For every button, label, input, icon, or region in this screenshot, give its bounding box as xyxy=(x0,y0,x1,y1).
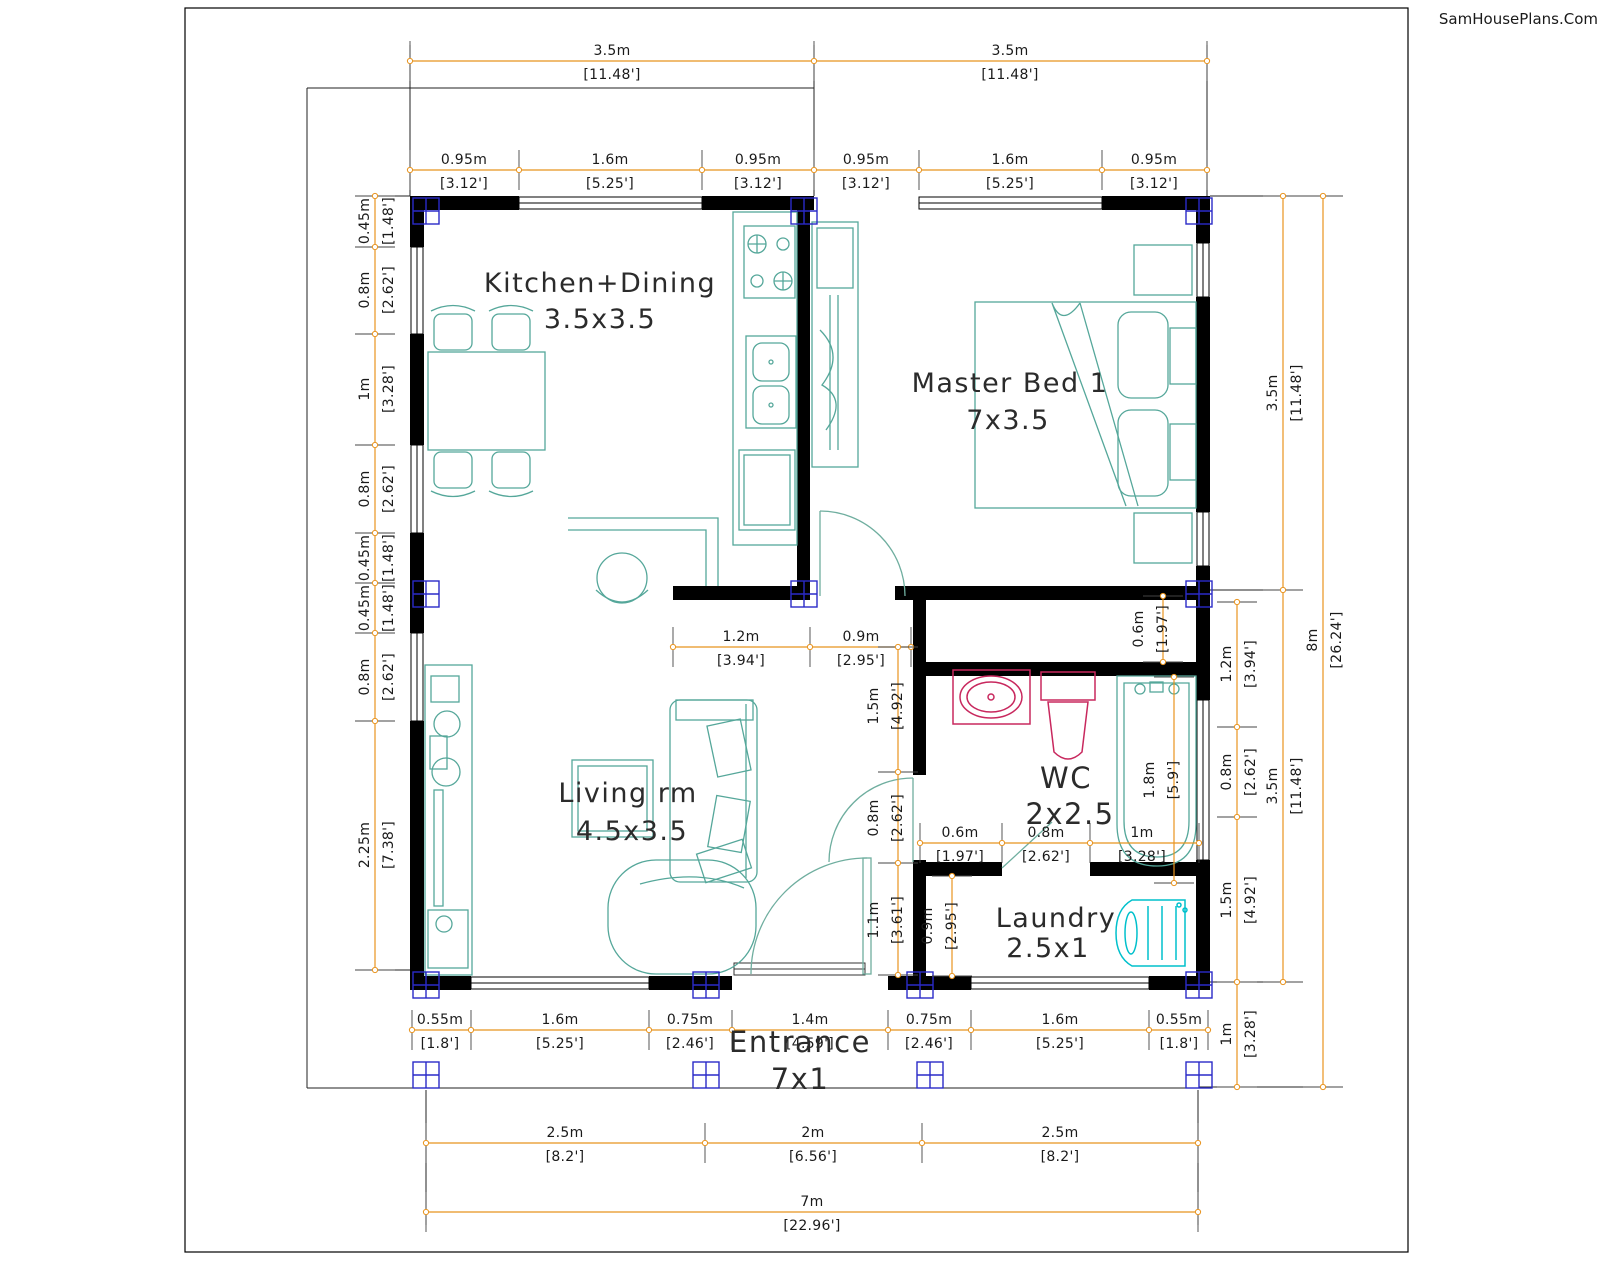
dimension-label-group: 8m[26.24'] xyxy=(1305,611,1345,668)
dimension-label-ft: [1.97'] xyxy=(1155,605,1171,653)
dimension-row: 0.95m[3.12']1.6m[5.25']0.95m[3.12']0.95m… xyxy=(407,150,1209,192)
dimension-label: 1.5m xyxy=(866,687,882,724)
dimension-label: 3.5m xyxy=(593,43,630,59)
dimension-label: 0.55m xyxy=(417,1012,463,1028)
dimension-column: 3.5m[11.48']3.5m[11.48'] xyxy=(1263,193,1305,984)
dimension-label-group: 1.2m[3.94'] xyxy=(1219,640,1259,688)
dimension-label-ft: [2.62'] xyxy=(381,653,397,701)
room-name: WC xyxy=(1040,761,1092,795)
dimension-label-group: 0.45m[1.48'] xyxy=(357,584,397,632)
dimension-label: 0.75m xyxy=(906,1012,952,1028)
dimension-label: 1.6m xyxy=(1041,1012,1078,1028)
floor-plan-page: SamHousePlans.Com xyxy=(0,0,1600,1280)
dimension-label-group: 0.8m[2.62'] xyxy=(357,653,397,701)
dimension-label-group: 0.8m[2.62'] xyxy=(866,794,906,842)
wardrobe xyxy=(812,222,858,467)
room-label: Laundry2.5x1 xyxy=(996,903,1117,964)
dimension-label: 0.95m xyxy=(1131,152,1177,168)
column-marker xyxy=(917,1062,943,1088)
dimension-label-ft: [3.94'] xyxy=(717,653,765,669)
dimension-label-group: 1.8m[5.9'] xyxy=(1142,761,1182,800)
dimension-column: 8m[26.24'] xyxy=(1303,193,1345,1089)
room-label: Master Bed 17x3.5 xyxy=(912,368,1109,436)
dimension-label-ft: [2.46'] xyxy=(666,1036,714,1052)
dimension-label: 1.2m xyxy=(722,629,759,645)
dimension-label: 0.8m xyxy=(357,470,373,507)
room-size: 3.5x3.5 xyxy=(544,304,656,335)
dimension-label-ft: [6.56'] xyxy=(789,1149,837,1165)
dimension-label-ft: [3.28'] xyxy=(1243,1010,1259,1058)
dimension-label: 0.6m xyxy=(1131,610,1147,647)
room-size: 2.5x1 xyxy=(1006,933,1090,964)
room-name: Entrance xyxy=(729,1025,871,1059)
kitchen-counter xyxy=(733,212,797,545)
washing-machine xyxy=(1116,900,1187,966)
dimension-column: 0.6m[1.97'] xyxy=(1131,593,1183,664)
column-marker xyxy=(413,1062,439,1088)
dimension-column: 0.9m[2.95'] xyxy=(920,873,972,978)
dimension-column: 1.5m[4.92']0.8m[2.62']1.1m[3.61'] xyxy=(866,644,918,977)
dimension-label: 1m xyxy=(357,377,373,400)
dimension-label: 2.25m xyxy=(357,822,373,868)
room-name: Laundry xyxy=(996,903,1117,934)
dining-table xyxy=(428,306,545,497)
dimension-label: 0.75m xyxy=(667,1012,713,1028)
dimension-label-ft: [3.12'] xyxy=(1130,176,1178,192)
dimension-label: 0.95m xyxy=(735,152,781,168)
dimension-label: 1m xyxy=(1130,825,1153,841)
dimension-label-ft: [7.38'] xyxy=(381,821,397,869)
dimension-label: 1m xyxy=(1219,1022,1235,1045)
dimension-label-ft: [5.9'] xyxy=(1166,761,1182,800)
column-marker xyxy=(1186,1062,1212,1088)
dimension-label: 0.95m xyxy=(441,152,487,168)
dimension-label-ft: [3.12'] xyxy=(440,176,488,192)
window xyxy=(411,633,423,721)
dimension-label-ft: [5.25'] xyxy=(586,176,634,192)
dimension-label: 3.5m xyxy=(1265,767,1281,804)
dimension-label: 8m xyxy=(1305,628,1321,651)
window xyxy=(519,197,702,209)
dimension-label-ft: [1.48'] xyxy=(381,584,397,632)
entrance-threshold xyxy=(734,963,865,975)
dimension-label-ft: [11.48'] xyxy=(583,67,640,83)
dimension-label-ft: [5.25'] xyxy=(536,1036,584,1052)
dimension-label-ft: [3.28'] xyxy=(381,365,397,413)
master-bed-door xyxy=(820,511,905,596)
dimension-label-group: 0.45m[1.48'] xyxy=(357,197,397,245)
dimension-label-group: 1.5m[4.92'] xyxy=(866,682,906,730)
dimension-label: 1.6m xyxy=(991,152,1028,168)
floor-plan-svg: SamHousePlans.Com xyxy=(0,0,1600,1280)
dimension-label-ft: [22.96'] xyxy=(783,1218,840,1234)
dimension-label: 0.9m xyxy=(842,629,879,645)
dimension-label-group: 1m[3.28'] xyxy=(1219,1010,1259,1058)
dimension-label-group: 1.5m[4.92'] xyxy=(1219,876,1259,924)
dimension-label-ft: [3.94'] xyxy=(1243,640,1259,688)
dimension-label-ft: [2.62'] xyxy=(1243,748,1259,796)
dimension-label: 0.8m xyxy=(1219,753,1235,790)
kitchen-cabinet xyxy=(739,450,795,530)
dimension-label: 0.8m xyxy=(357,658,373,695)
room-name: Master Bed 1 xyxy=(912,368,1109,399)
room-name: Kitchen+Dining xyxy=(484,268,716,299)
dimension-label-ft: [5.25'] xyxy=(986,176,1034,192)
dimension-label: 0.6m xyxy=(941,825,978,841)
dimension-label-ft: [2.62'] xyxy=(381,465,397,513)
nightstand xyxy=(1134,513,1192,563)
dimension-label: 0.9m xyxy=(920,907,936,944)
window xyxy=(971,977,1149,989)
dimension-label-group: 0.8m[2.62'] xyxy=(1219,748,1259,796)
dimension-label-ft: [8.2'] xyxy=(546,1149,585,1165)
dimension-label: 1.1m xyxy=(866,901,882,938)
dimension-label: 2.5m xyxy=(546,1125,583,1141)
dimension-label: 0.8m xyxy=(866,799,882,836)
dimension-label: 0.45m xyxy=(357,198,373,244)
dimension-label-ft: [4.92'] xyxy=(890,682,906,730)
dimension-label: 0.8m xyxy=(357,271,373,308)
entrance-door xyxy=(751,858,871,974)
dimension-label-ft: [5.25'] xyxy=(1036,1036,1084,1052)
wc-sink xyxy=(953,670,1030,724)
dimension-label-ft: [11.48'] xyxy=(1289,364,1305,421)
dimension-label: 7m xyxy=(800,1194,823,1210)
column-marker xyxy=(693,1062,719,1088)
stove xyxy=(744,226,795,298)
dimension-label-ft: [3.12'] xyxy=(734,176,782,192)
dimension-label-group: 0.45m[1.48'] xyxy=(357,534,397,582)
dimension-label-ft: [2.95'] xyxy=(837,653,885,669)
dimension-label-ft: [11.48'] xyxy=(1289,757,1305,814)
dimension-label-group: 3.5m[11.48'] xyxy=(1265,364,1305,421)
window xyxy=(471,977,649,989)
dimension-label-group: 0.6m[1.97'] xyxy=(1131,605,1171,653)
room-label: Living rm4.5x3.5 xyxy=(558,778,697,847)
dimension-row: 7m[22.96'] xyxy=(423,1192,1200,1234)
dimension-label-ft: [2.46'] xyxy=(905,1036,953,1052)
dimension-label-group: 2.25m[7.38'] xyxy=(357,821,397,869)
room-label: Entrance7x1 xyxy=(729,1025,871,1096)
media-unit xyxy=(425,665,472,975)
dimension-label: 0.45m xyxy=(357,585,373,631)
walls xyxy=(410,196,1210,990)
dimension-label-group: 1m[3.28'] xyxy=(357,365,397,413)
dimension-label-ft: [1.48'] xyxy=(381,534,397,582)
dimension-label: 0.55m xyxy=(1156,1012,1202,1028)
dimension-label-ft: [26.24'] xyxy=(1329,611,1345,668)
dimension-label: 1.5m xyxy=(1219,881,1235,918)
watermark: SamHousePlans.Com xyxy=(1439,10,1598,28)
dimension-label-group: 0.9m[2.95'] xyxy=(920,902,960,950)
room-label: WC2x2.5 xyxy=(1025,761,1114,831)
dimension-label: 1.8m xyxy=(1142,761,1158,798)
dimension-label-group: 0.8m[2.62'] xyxy=(357,266,397,314)
window xyxy=(411,445,423,533)
dimension-label-ft: [2.62'] xyxy=(381,266,397,314)
column-marker xyxy=(693,972,719,998)
dimension-label: 1.6m xyxy=(591,152,628,168)
window xyxy=(919,197,1102,209)
window xyxy=(1197,243,1209,297)
dimension-label-ft: [3.28'] xyxy=(1118,849,1166,865)
dimension-label-ft: [3.61'] xyxy=(890,896,906,944)
window xyxy=(1197,512,1209,566)
dimension-label-ft: [2.62'] xyxy=(890,794,906,842)
room-size: 4.5x3.5 xyxy=(576,816,688,847)
dimension-label: 3.5m xyxy=(1265,374,1281,411)
dimension-row: 3.5m[11.48']3.5m[11.48'] xyxy=(407,41,1209,83)
room-label: Kitchen+Dining3.5x3.5 xyxy=(484,268,716,335)
dimension-column: 1.2m[3.94']0.8m[2.62']1.5m[4.92']1m[3.28… xyxy=(1217,599,1259,1089)
dimension-row: 2.5m[8.2']2m[6.56']2.5m[8.2'] xyxy=(423,1123,1200,1165)
column-marker xyxy=(791,581,817,607)
toilet xyxy=(1041,672,1095,759)
dimension-label: 2m xyxy=(801,1125,824,1141)
kitchen-sink xyxy=(746,336,796,428)
dimension-label: 2.5m xyxy=(1041,1125,1078,1141)
wc-fixtures xyxy=(953,670,1095,759)
dimension-label-ft: [1.8'] xyxy=(1160,1036,1199,1052)
dimension-label-ft: [2.62'] xyxy=(1022,849,1070,865)
nightstand xyxy=(1134,245,1192,295)
window xyxy=(411,247,423,334)
room-size: 7x3.5 xyxy=(966,405,1050,436)
dimension-label: 0.95m xyxy=(843,152,889,168)
dimension-label-ft: [1.97'] xyxy=(936,849,984,865)
dimension-label: 1.6m xyxy=(541,1012,578,1028)
room-size: 7x1 xyxy=(771,1062,830,1096)
dimension-label-ft: [1.48'] xyxy=(381,197,397,245)
dimension-label-ft: [4.92'] xyxy=(1243,876,1259,924)
dimension-label: 0.45m xyxy=(357,535,373,581)
dimension-label-ft: [8.2'] xyxy=(1041,1149,1080,1165)
dimension-column: 0.45m[1.48']0.8m[2.62']1m[3.28']0.8m[2.6… xyxy=(355,193,397,972)
dimension-label-group: 0.8m[2.62'] xyxy=(357,465,397,513)
room-size: 2x2.5 xyxy=(1025,797,1114,831)
dimension-label-ft: [3.12'] xyxy=(842,176,890,192)
dimension-label-group: 3.5m[11.48'] xyxy=(1265,757,1305,814)
dimension-label: 3.5m xyxy=(991,43,1028,59)
dimension-label-ft: [1.8'] xyxy=(421,1036,460,1052)
room-name: Living rm xyxy=(558,778,697,809)
column-marker xyxy=(907,972,933,998)
dimension-row: 1.2m[3.94']0.9m[2.95'] xyxy=(670,627,913,669)
dimension-label: 1.2m xyxy=(1219,645,1235,682)
dimension-label-ft: [2.95'] xyxy=(944,902,960,950)
dimension-label-ft: [11.48'] xyxy=(981,67,1038,83)
dimension-label-group: 1.1m[3.61'] xyxy=(866,896,906,944)
